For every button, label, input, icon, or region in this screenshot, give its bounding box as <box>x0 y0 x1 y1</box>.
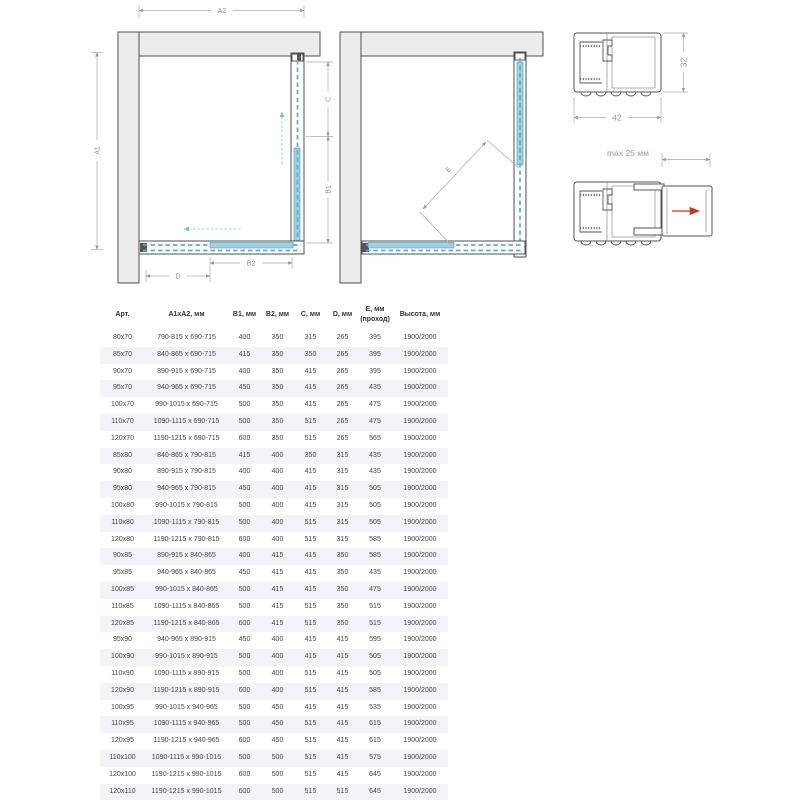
table-cell: 500 <box>228 397 261 414</box>
top-wall <box>340 32 543 56</box>
table-cell: 505 <box>358 515 392 532</box>
table-cell: 265 <box>327 380 358 397</box>
table-cell: 95x70 <box>100 380 145 397</box>
table-cell: 475 <box>358 414 392 431</box>
table-cell: 890-915 x 790-815 <box>145 464 228 481</box>
table-cell: 415 <box>327 716 358 733</box>
table-cell: 415 <box>327 750 358 767</box>
table-cell: 85x80 <box>100 448 145 465</box>
table-cell: 350 <box>261 364 294 381</box>
table-cell: 315 <box>327 532 358 549</box>
table-cell: 90x80 <box>100 464 145 481</box>
table-cell: 415 <box>327 683 358 700</box>
table-cell: 500 <box>228 498 261 515</box>
table-cell: 1900/2000 <box>392 750 448 767</box>
table-cell: 1090-1115 x 940-965 <box>145 716 228 733</box>
table-row: 110x851090-1115 x 840-865500415515350515… <box>100 599 448 616</box>
table-cell: 1090-1115 x 790-815 <box>145 515 228 532</box>
table-cell: 415 <box>294 364 327 381</box>
table-cell: 500 <box>228 716 261 733</box>
table-cell: 315 <box>327 464 358 481</box>
table-cell: 415 <box>327 649 358 666</box>
table-row: 85x70840-865 x 690-715415350350265395190… <box>100 347 448 364</box>
table-row: 100x95990-1015 x 940-9655004504154155351… <box>100 700 448 717</box>
table-cell: 400 <box>261 532 294 549</box>
table-cell: 120x70 <box>100 431 145 448</box>
table-row: 120x901190-1215 x 890-915600400515415585… <box>100 683 448 700</box>
table-cell: 1900/2000 <box>392 515 448 532</box>
left-wall <box>118 32 139 283</box>
table-cell: 940-965 x 790-815 <box>145 481 228 498</box>
table-cell: 350 <box>294 448 327 465</box>
table-cell: 990-1015 x 840-865 <box>145 582 228 599</box>
table-cell: 505 <box>358 649 392 666</box>
table-cell: 940-965 x 840-865 <box>145 565 228 582</box>
table-cell: 515 <box>294 532 327 549</box>
table-cell: 90x70 <box>100 364 145 381</box>
table-cell: 515 <box>294 431 327 448</box>
table-cell: 500 <box>228 750 261 767</box>
table-row: 110x1001090-1115 x 990-10155005005154155… <box>100 750 448 767</box>
table-cell: 120x85 <box>100 616 145 633</box>
table-cell: 415 <box>294 632 327 649</box>
table-cell: 415 <box>294 565 327 582</box>
table-cell: 600 <box>228 683 261 700</box>
profile-section: 32 42 <box>574 33 689 123</box>
table-cell: 1190-1215 x 890-915 <box>145 683 228 700</box>
table-cell: 415 <box>294 464 327 481</box>
table-cell: 415 <box>294 582 327 599</box>
dim-label-a2: A2 <box>218 8 227 15</box>
table-row: 110x901090-1115 x 890-915500400515415505… <box>100 666 448 683</box>
table-cell: 840-865 x 790-815 <box>145 448 228 465</box>
table-cell: 315 <box>294 330 327 347</box>
table-cell: 315 <box>327 481 358 498</box>
table-cell: 100x70 <box>100 397 145 414</box>
table-cell: 435 <box>358 448 392 465</box>
table-cell: 940-965 x 890-915 <box>145 632 228 649</box>
table-cell: 265 <box>327 397 358 414</box>
table-cell: 1900/2000 <box>392 397 448 414</box>
table-cell: 350 <box>327 548 358 565</box>
extension-flange-bottom <box>634 228 664 235</box>
table-cell: 840-865 x 690-715 <box>145 347 228 364</box>
size-table-wrap: Арт.A1xA2, ммB1, ммB2, ммC, ммD, ммE, мм… <box>100 300 448 800</box>
table-cell: 415 <box>327 700 358 717</box>
table-cell: 315 <box>327 498 358 515</box>
table-cell: 350 <box>261 380 294 397</box>
table-cell: 1900/2000 <box>392 733 448 750</box>
table-cell: 80x70 <box>100 330 145 347</box>
table-cell: 350 <box>327 599 358 616</box>
column-header: D, мм <box>327 300 358 330</box>
table-cell: 1190-1215 x 840-865 <box>145 616 228 633</box>
table-cell: 1900/2000 <box>392 767 448 784</box>
table-cell: 435 <box>358 380 392 397</box>
extension-flange-top <box>634 184 664 190</box>
table-cell: 1190-1215 x 690-715 <box>145 431 228 448</box>
size-table: Арт.A1xA2, ммB1, ммB2, ммC, ммD, ммE, мм… <box>100 300 448 800</box>
table-cell: 615 <box>358 733 392 750</box>
table-cell: 415 <box>327 632 358 649</box>
table-cell: 1900/2000 <box>392 330 448 347</box>
bottom-glass-panel <box>210 243 293 249</box>
table-row: 100x70990-1015 x 690-7155003504152654751… <box>100 397 448 414</box>
table-cell: 95x85 <box>100 565 145 582</box>
table-row: 100x80990-1015 x 790-8155004004153155051… <box>100 498 448 515</box>
dim-label-b2: B2 <box>247 261 256 268</box>
table-cell: 265 <box>327 347 358 364</box>
table-cell: 120x95 <box>100 733 145 750</box>
dim-label-c: C <box>326 97 333 102</box>
table-cell: 110x85 <box>100 599 145 616</box>
table-cell: 350 <box>327 565 358 582</box>
table-cell: 400 <box>261 515 294 532</box>
table-cell: 315 <box>327 515 358 532</box>
table-cell: 400 <box>228 464 261 481</box>
table-cell: 315 <box>327 448 358 465</box>
table-row: 95x85940-965 x 840-865450415415350435190… <box>100 565 448 582</box>
table-cell: 500 <box>228 649 261 666</box>
table-cell: 475 <box>358 582 392 599</box>
table-cell: 350 <box>294 347 327 364</box>
table-cell: 575 <box>358 750 392 767</box>
table-cell: 265 <box>327 414 358 431</box>
table-cell: 1900/2000 <box>392 666 448 683</box>
table-cell: 1190-1215 x 790-815 <box>145 532 228 549</box>
table-cell: 515 <box>294 716 327 733</box>
table-cell: 500 <box>228 666 261 683</box>
technical-drawings: A2 A1 C B1 B2 D <box>0 0 800 298</box>
dim-label-profile-height: 32 <box>679 58 689 68</box>
profile-extension-section: max 25 мм <box>574 148 712 245</box>
left-wall <box>340 32 361 283</box>
table-cell: 415 <box>327 666 358 683</box>
table-cell: 450 <box>228 380 261 397</box>
table-cell: 600 <box>228 733 261 750</box>
column-header: Высота, мм <box>392 300 448 330</box>
table-cell: 90x85 <box>100 548 145 565</box>
table-cell: 350 <box>261 431 294 448</box>
dim-label-e: E <box>445 166 454 174</box>
table-cell: 350 <box>261 347 294 364</box>
table-cell: 515 <box>294 599 327 616</box>
table-cell: 890-915 x 840-865 <box>145 548 228 565</box>
table-cell: 990-1015 x 940-965 <box>145 700 228 717</box>
table-row: 110x701090-1115 x 690-715500350515265475… <box>100 414 448 431</box>
table-cell: 1900/2000 <box>392 464 448 481</box>
table-cell: 415 <box>261 548 294 565</box>
table-row: 90x80890-915 x 790-815400400415315435190… <box>100 464 448 481</box>
dim-label-d: D <box>175 274 180 281</box>
dim-label-b1: B1 <box>326 185 333 194</box>
table-cell: 415 <box>228 347 261 364</box>
table-row: 120x1001190-1215 x 990-10156005005154156… <box>100 767 448 784</box>
top-wall <box>118 32 320 56</box>
table-cell: 1900/2000 <box>392 548 448 565</box>
table-cell: 500 <box>261 784 294 800</box>
table-cell: 100x90 <box>100 649 145 666</box>
table-cell: 1090-1115 x 690-715 <box>145 414 228 431</box>
table-cell: 120x90 <box>100 683 145 700</box>
table-row: 95x80940-965 x 790-815450400415315505190… <box>100 481 448 498</box>
table-cell: 415 <box>294 498 327 515</box>
table-cell: 350 <box>261 414 294 431</box>
table-cell: 265 <box>327 431 358 448</box>
table-cell: 435 <box>358 565 392 582</box>
table-cell: 110x100 <box>100 750 145 767</box>
table-row: 90x85890-915 x 840-865400415415350585190… <box>100 548 448 565</box>
bottom-glass-panel-open <box>368 243 454 249</box>
table-cell: 95x80 <box>100 481 145 498</box>
table-cell: 600 <box>228 431 261 448</box>
table-cell: 515 <box>294 414 327 431</box>
table-cell: 100x95 <box>100 700 145 717</box>
table-row: 95x70940-965 x 690-715450350415265435190… <box>100 380 448 397</box>
table-cell: 645 <box>358 784 392 800</box>
table-cell: 400 <box>261 666 294 683</box>
table-cell: 450 <box>228 481 261 498</box>
table-cell: 515 <box>294 515 327 532</box>
table-cell: 790-815 x 690-715 <box>145 330 228 347</box>
table-cell: 1900/2000 <box>392 364 448 381</box>
table-cell: 450 <box>261 733 294 750</box>
table-cell: 515 <box>358 599 392 616</box>
table-cell: 450 <box>228 632 261 649</box>
table-cell: 1090-1115 x 840-865 <box>145 599 228 616</box>
column-header: Арт. <box>100 300 145 330</box>
table-cell: 120x110 <box>100 784 145 800</box>
table-cell: 600 <box>228 532 261 549</box>
column-header: C, мм <box>294 300 327 330</box>
table-cell: 350 <box>327 616 358 633</box>
plan-diagram-open: E <box>340 32 543 283</box>
table-cell: 1190-1215 x 990-1015 <box>145 784 228 800</box>
column-header: B2, мм <box>261 300 294 330</box>
table-cell: 600 <box>228 784 261 800</box>
table-cell: 350 <box>327 582 358 599</box>
table-cell: 500 <box>261 767 294 784</box>
table-cell: 415 <box>327 733 358 750</box>
table-cell: 505 <box>358 481 392 498</box>
table-cell: 415 <box>294 397 327 414</box>
table-cell: 450 <box>261 700 294 717</box>
max-adjust-label: max 25 мм <box>607 148 649 158</box>
table-row: 80x70790-815 x 690-715400350315265395190… <box>100 330 448 347</box>
column-header: B1, мм <box>228 300 261 330</box>
table-cell: 500 <box>228 515 261 532</box>
table-cell: 505 <box>358 498 392 515</box>
table-row: 90x70890-915 x 690-715400350415265395190… <box>100 364 448 381</box>
table-cell: 585 <box>358 532 392 549</box>
table-cell: 415 <box>228 448 261 465</box>
table-cell: 415 <box>294 380 327 397</box>
table-cell: 565 <box>358 431 392 448</box>
table-cell: 1900/2000 <box>392 498 448 515</box>
table-cell: 1900/2000 <box>392 683 448 700</box>
table-cell: 1900/2000 <box>392 347 448 364</box>
table-cell: 890-915 x 690-715 <box>145 364 228 381</box>
dim-label-profile-width: 42 <box>612 113 622 123</box>
column-header: A1xA2, мм <box>145 300 228 330</box>
table-cell: 1900/2000 <box>392 716 448 733</box>
table-cell: 515 <box>294 750 327 767</box>
table-cell: 515 <box>294 733 327 750</box>
table-row: 120x851190-1215 x 840-865600415515350515… <box>100 616 448 633</box>
table-cell: 990-1015 x 790-815 <box>145 498 228 515</box>
table-body: 80x70790-815 x 690-715400350315265395190… <box>100 330 448 800</box>
table-cell: 645 <box>358 767 392 784</box>
table-cell: 500 <box>228 414 261 431</box>
table-cell: 1900/2000 <box>392 532 448 549</box>
table-cell: 515 <box>294 784 327 800</box>
table-cell: 400 <box>261 649 294 666</box>
table-cell: 120x80 <box>100 532 145 549</box>
table-cell: 1900/2000 <box>392 380 448 397</box>
table-cell: 1090-1115 x 890-915 <box>145 666 228 683</box>
table-cell: 600 <box>228 767 261 784</box>
column-header: E, мм (проход) <box>358 300 392 330</box>
table-cell: 505 <box>358 666 392 683</box>
table-cell: 515 <box>294 683 327 700</box>
side-frame-bracket-dark <box>297 54 301 61</box>
table-cell: 110x95 <box>100 716 145 733</box>
table-cell: 450 <box>228 565 261 582</box>
plan-diagram-closed: A2 A1 C B1 B2 D <box>91 5 333 283</box>
table-cell: 415 <box>261 565 294 582</box>
table-cell: 120x100 <box>100 767 145 784</box>
table-cell: 1900/2000 <box>392 431 448 448</box>
table-cell: 100x80 <box>100 498 145 515</box>
table-cell: 500 <box>228 582 261 599</box>
table-cell: 535 <box>358 700 392 717</box>
table-cell: 515 <box>358 616 392 633</box>
table-cell: 415 <box>327 767 358 784</box>
table-cell: 1900/2000 <box>392 599 448 616</box>
table-cell: 435 <box>358 464 392 481</box>
table-row: 120x701190-1215 x 690-715600350515265565… <box>100 431 448 448</box>
table-cell: 515 <box>294 767 327 784</box>
table-cell: 395 <box>358 347 392 364</box>
table-cell: 400 <box>261 481 294 498</box>
table-cell: 415 <box>294 649 327 666</box>
table-cell: 350 <box>261 330 294 347</box>
table-cell: 515 <box>294 616 327 633</box>
table-cell: 585 <box>358 683 392 700</box>
table-cell: 990-1015 x 690-715 <box>145 397 228 414</box>
table-row: 120x801190-1215 x 790-815600400515315585… <box>100 532 448 549</box>
table-cell: 415 <box>294 481 327 498</box>
table-cell: 1900/2000 <box>392 481 448 498</box>
table-cell: 395 <box>358 330 392 347</box>
table-cell: 400 <box>261 683 294 700</box>
table-row: 110x951090-1115 x 940-965500450515415615… <box>100 716 448 733</box>
table-cell: 1900/2000 <box>392 649 448 666</box>
table-cell: 350 <box>261 397 294 414</box>
table-cell: 400 <box>261 632 294 649</box>
table-cell: 515 <box>327 784 358 800</box>
table-cell: 595 <box>358 632 392 649</box>
table-cell: 400 <box>228 364 261 381</box>
table-cell: 500 <box>228 599 261 616</box>
table-cell: 415 <box>261 599 294 616</box>
dim-label-a1: A1 <box>95 146 102 155</box>
table-cell: 85x70 <box>100 347 145 364</box>
table-cell: 400 <box>228 330 261 347</box>
table-row: 120x951190-1215 x 940-965600450515415615… <box>100 733 448 750</box>
table-cell: 500 <box>228 700 261 717</box>
table-cell: 265 <box>327 330 358 347</box>
table-row: 100x85990-1015 x 840-8655004154153504751… <box>100 582 448 599</box>
table-cell: 265 <box>327 364 358 381</box>
table-cell: 1900/2000 <box>392 565 448 582</box>
table-cell: 585 <box>358 548 392 565</box>
table-cell: 1900/2000 <box>392 784 448 800</box>
table-cell: 395 <box>358 364 392 381</box>
table-cell: 400 <box>261 448 294 465</box>
table-cell: 110x70 <box>100 414 145 431</box>
table-header-row: Арт.A1xA2, ммB1, ммB2, ммC, ммD, ммE, мм… <box>100 300 448 330</box>
table-cell: 415 <box>294 700 327 717</box>
table-cell: 1900/2000 <box>392 414 448 431</box>
table-cell: 95x90 <box>100 632 145 649</box>
table-cell: 450 <box>261 716 294 733</box>
table-row: 120x1101190-1215 x 990-10156005005155156… <box>100 784 448 800</box>
table-cell: 400 <box>228 548 261 565</box>
table-cell: 1190-1215 x 940-965 <box>145 733 228 750</box>
table-cell: 1900/2000 <box>392 632 448 649</box>
table-cell: 1900/2000 <box>392 582 448 599</box>
table-cell: 500 <box>261 750 294 767</box>
table-cell: 600 <box>228 616 261 633</box>
table-cell: 415 <box>261 616 294 633</box>
table-cell: 110x80 <box>100 515 145 532</box>
table-cell: 415 <box>261 582 294 599</box>
table-cell: 1190-1215 x 990-1015 <box>145 767 228 784</box>
table-row: 110x801090-1115 x 790-815500400515315505… <box>100 515 448 532</box>
table-cell: 400 <box>261 464 294 481</box>
table-cell: 110x90 <box>100 666 145 683</box>
table-cell: 400 <box>261 498 294 515</box>
table-cell: 1900/2000 <box>392 616 448 633</box>
table-cell: 475 <box>358 397 392 414</box>
table-cell: 615 <box>358 716 392 733</box>
table-row: 85x80840-865 x 790-815415400350315435190… <box>100 448 448 465</box>
table-cell: 415 <box>294 548 327 565</box>
table-cell: 100x85 <box>100 582 145 599</box>
table-cell: 1900/2000 <box>392 448 448 465</box>
table-cell: 990-1015 x 890-915 <box>145 649 228 666</box>
table-cell: 515 <box>294 666 327 683</box>
table-cell: 940-965 x 690-715 <box>145 380 228 397</box>
table-cell: 1090-1115 x 990-1015 <box>145 750 228 767</box>
table-cell: 1900/2000 <box>392 700 448 717</box>
table-row: 100x90990-1015 x 890-9155004004154155051… <box>100 649 448 666</box>
table-row: 95x90940-965 x 890-915450400415415595190… <box>100 632 448 649</box>
